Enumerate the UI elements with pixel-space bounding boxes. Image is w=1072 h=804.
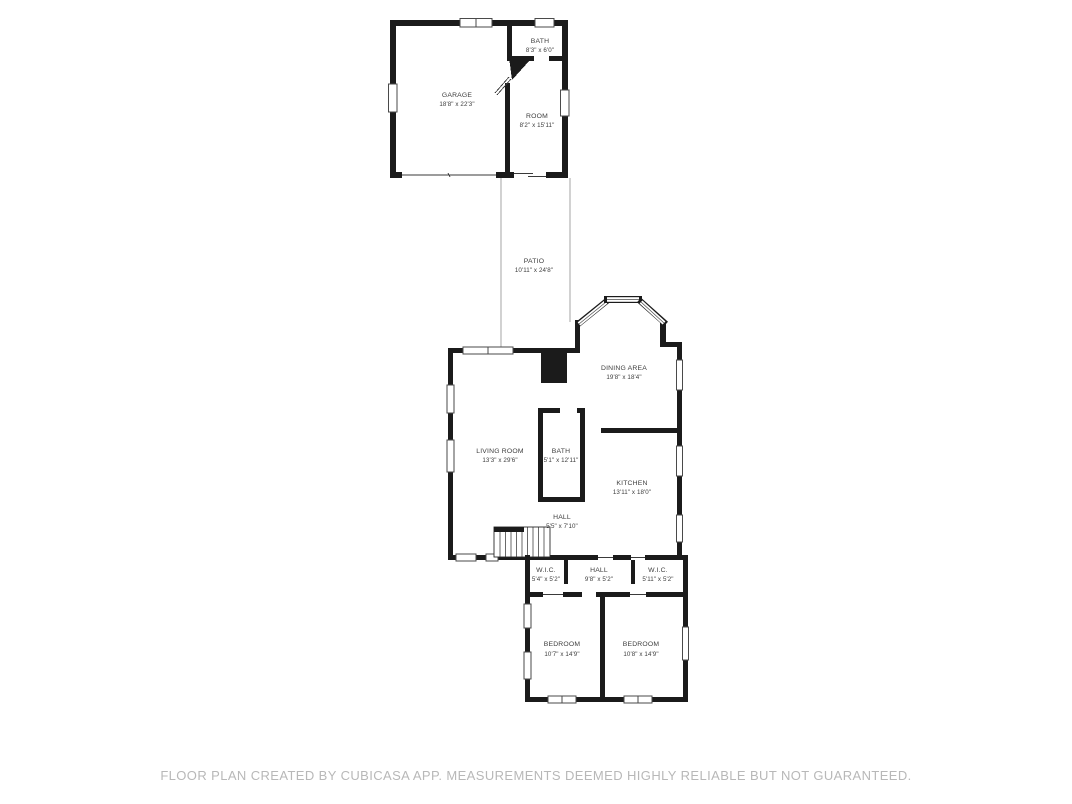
window xyxy=(677,515,683,542)
wall-segment xyxy=(600,592,605,702)
room-dims-bath-main: 5'1" x 12'11" xyxy=(544,457,579,464)
room-dims-bath-top: 8'3" x 6'0" xyxy=(526,47,554,54)
room-dims-garage: 18'8" x 22'3" xyxy=(439,101,474,108)
room-label-room: ROOM xyxy=(526,113,548,120)
fireplace xyxy=(541,352,567,383)
room-dims-wic-left: 5'4" x 5'2" xyxy=(532,576,560,583)
room-dims-bedroom-right: 10'8" x 14'9" xyxy=(623,651,658,658)
room-dims-living: 13'3" x 29'6" xyxy=(482,457,517,464)
room-label-patio: PATIO xyxy=(524,258,544,265)
wall-segment xyxy=(601,428,677,433)
window xyxy=(535,19,554,28)
window xyxy=(389,84,398,112)
wall-segment xyxy=(549,56,562,61)
disclaimer-text: FLOOR PLAN CREATED BY CUBICASA APP. MEAS… xyxy=(0,768,1072,783)
window-line xyxy=(579,302,606,324)
staircase xyxy=(494,527,550,557)
room-label-bedroom-right: BEDROOM xyxy=(623,641,660,648)
room-label-wic-right: W.I.C. xyxy=(648,567,668,574)
room-dims-wic-right: 5'11" x 5'2" xyxy=(642,576,673,583)
room-label-bath-top: BATH xyxy=(531,38,549,45)
room-label-living: LIVING ROOM xyxy=(476,448,524,455)
floor-plan-drawing: GARAGE 18'8" x 22'3" BATH 8'3" x 6'0" RO… xyxy=(0,0,1072,804)
wall-segment xyxy=(538,497,585,502)
wall-segment xyxy=(580,408,585,502)
room-dims-room: 8'2" x 15'11" xyxy=(520,122,555,129)
room-dims-patio: 10'11" x 24'8" xyxy=(515,267,553,274)
room-label-dining: DINING AREA xyxy=(601,365,647,372)
room-dims-kitchen: 13'11" x 18'0" xyxy=(613,489,651,496)
wall-corner xyxy=(509,57,530,80)
room-label-hall-lower: HALL xyxy=(590,567,608,574)
wall-segment xyxy=(390,172,402,178)
wall-segment xyxy=(646,592,688,597)
wall-segment xyxy=(507,26,512,58)
wall-segment xyxy=(525,555,530,702)
window xyxy=(677,446,683,476)
wall-segment xyxy=(613,555,631,560)
wall-segment xyxy=(564,560,568,584)
room-label-bath-main: BATH xyxy=(552,448,570,455)
wall-segment xyxy=(505,83,510,172)
room-label-wic-left: W.I.C. xyxy=(536,567,556,574)
room-label-bedroom-left: BEDROOM xyxy=(544,641,581,648)
wall-segment xyxy=(538,408,543,502)
main-house xyxy=(447,296,688,561)
wall-segment xyxy=(494,527,524,532)
wall-segment xyxy=(525,592,543,597)
wall-segment xyxy=(563,592,582,597)
room-dims-hall-upper: 5'5" x 7'10" xyxy=(546,523,578,530)
wall-segment xyxy=(546,172,568,178)
window xyxy=(456,554,476,561)
wall-segment xyxy=(538,408,560,413)
window xyxy=(447,440,454,472)
room-label-kitchen: KITCHEN xyxy=(616,480,647,487)
window xyxy=(524,652,531,679)
window xyxy=(677,360,683,390)
wall-segment xyxy=(645,555,688,560)
bay-window xyxy=(577,296,666,325)
room-dims-hall-lower: 9'8" x 5'2" xyxy=(585,576,613,583)
window xyxy=(524,604,531,628)
window xyxy=(447,385,454,413)
window xyxy=(683,627,689,660)
floor-plan-canvas: GARAGE 18'8" x 22'3" BATH 8'3" x 6'0" RO… xyxy=(0,0,1072,804)
window-line xyxy=(641,302,664,323)
room-dims-dining: 19'8" x 18'4" xyxy=(606,374,641,381)
wall-segment xyxy=(496,172,514,178)
room-label-garage: GARAGE xyxy=(442,92,473,99)
wall-segment xyxy=(631,560,635,584)
window xyxy=(561,90,570,116)
room-dims-bedroom-left: 10'7" x 14'9" xyxy=(544,651,579,658)
room-label-hall-upper: HALL xyxy=(553,514,571,521)
